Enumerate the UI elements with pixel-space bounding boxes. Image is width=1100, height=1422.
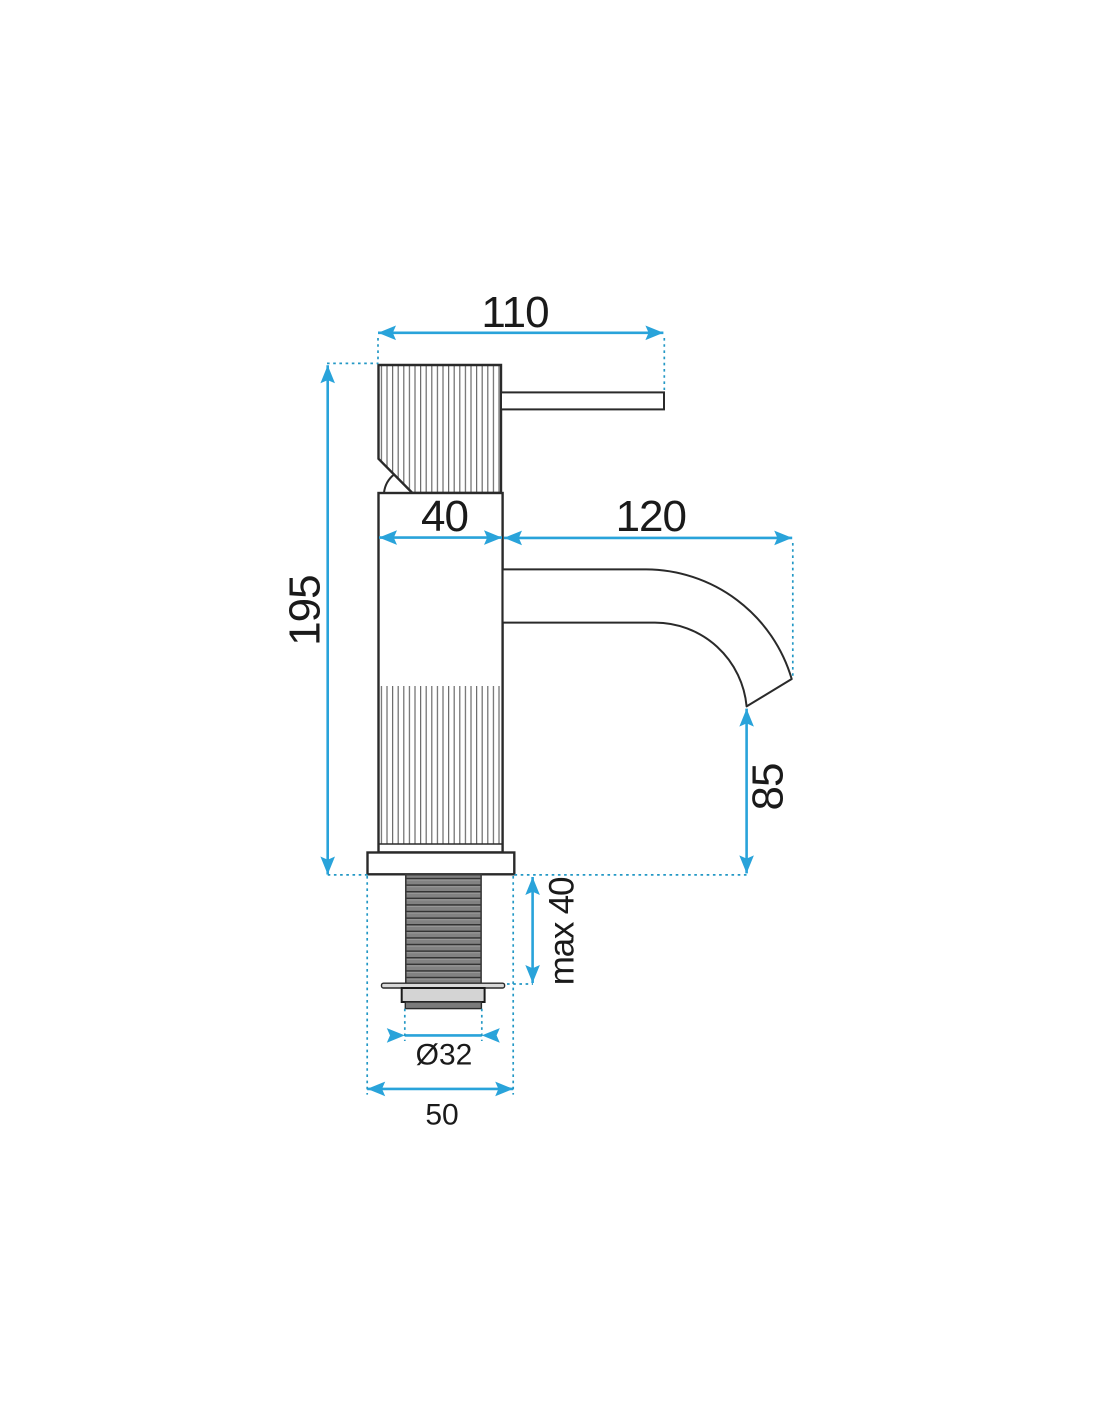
svg-text:max 40: max 40	[543, 877, 582, 985]
svg-text:195: 195	[281, 575, 330, 645]
svg-text:Ø32: Ø32	[416, 1039, 473, 1072]
svg-text:110: 110	[481, 288, 548, 337]
svg-text:85: 85	[744, 764, 793, 811]
svg-text:120: 120	[616, 492, 686, 541]
svg-text:50: 50	[425, 1099, 458, 1132]
svg-text:40: 40	[421, 492, 468, 541]
